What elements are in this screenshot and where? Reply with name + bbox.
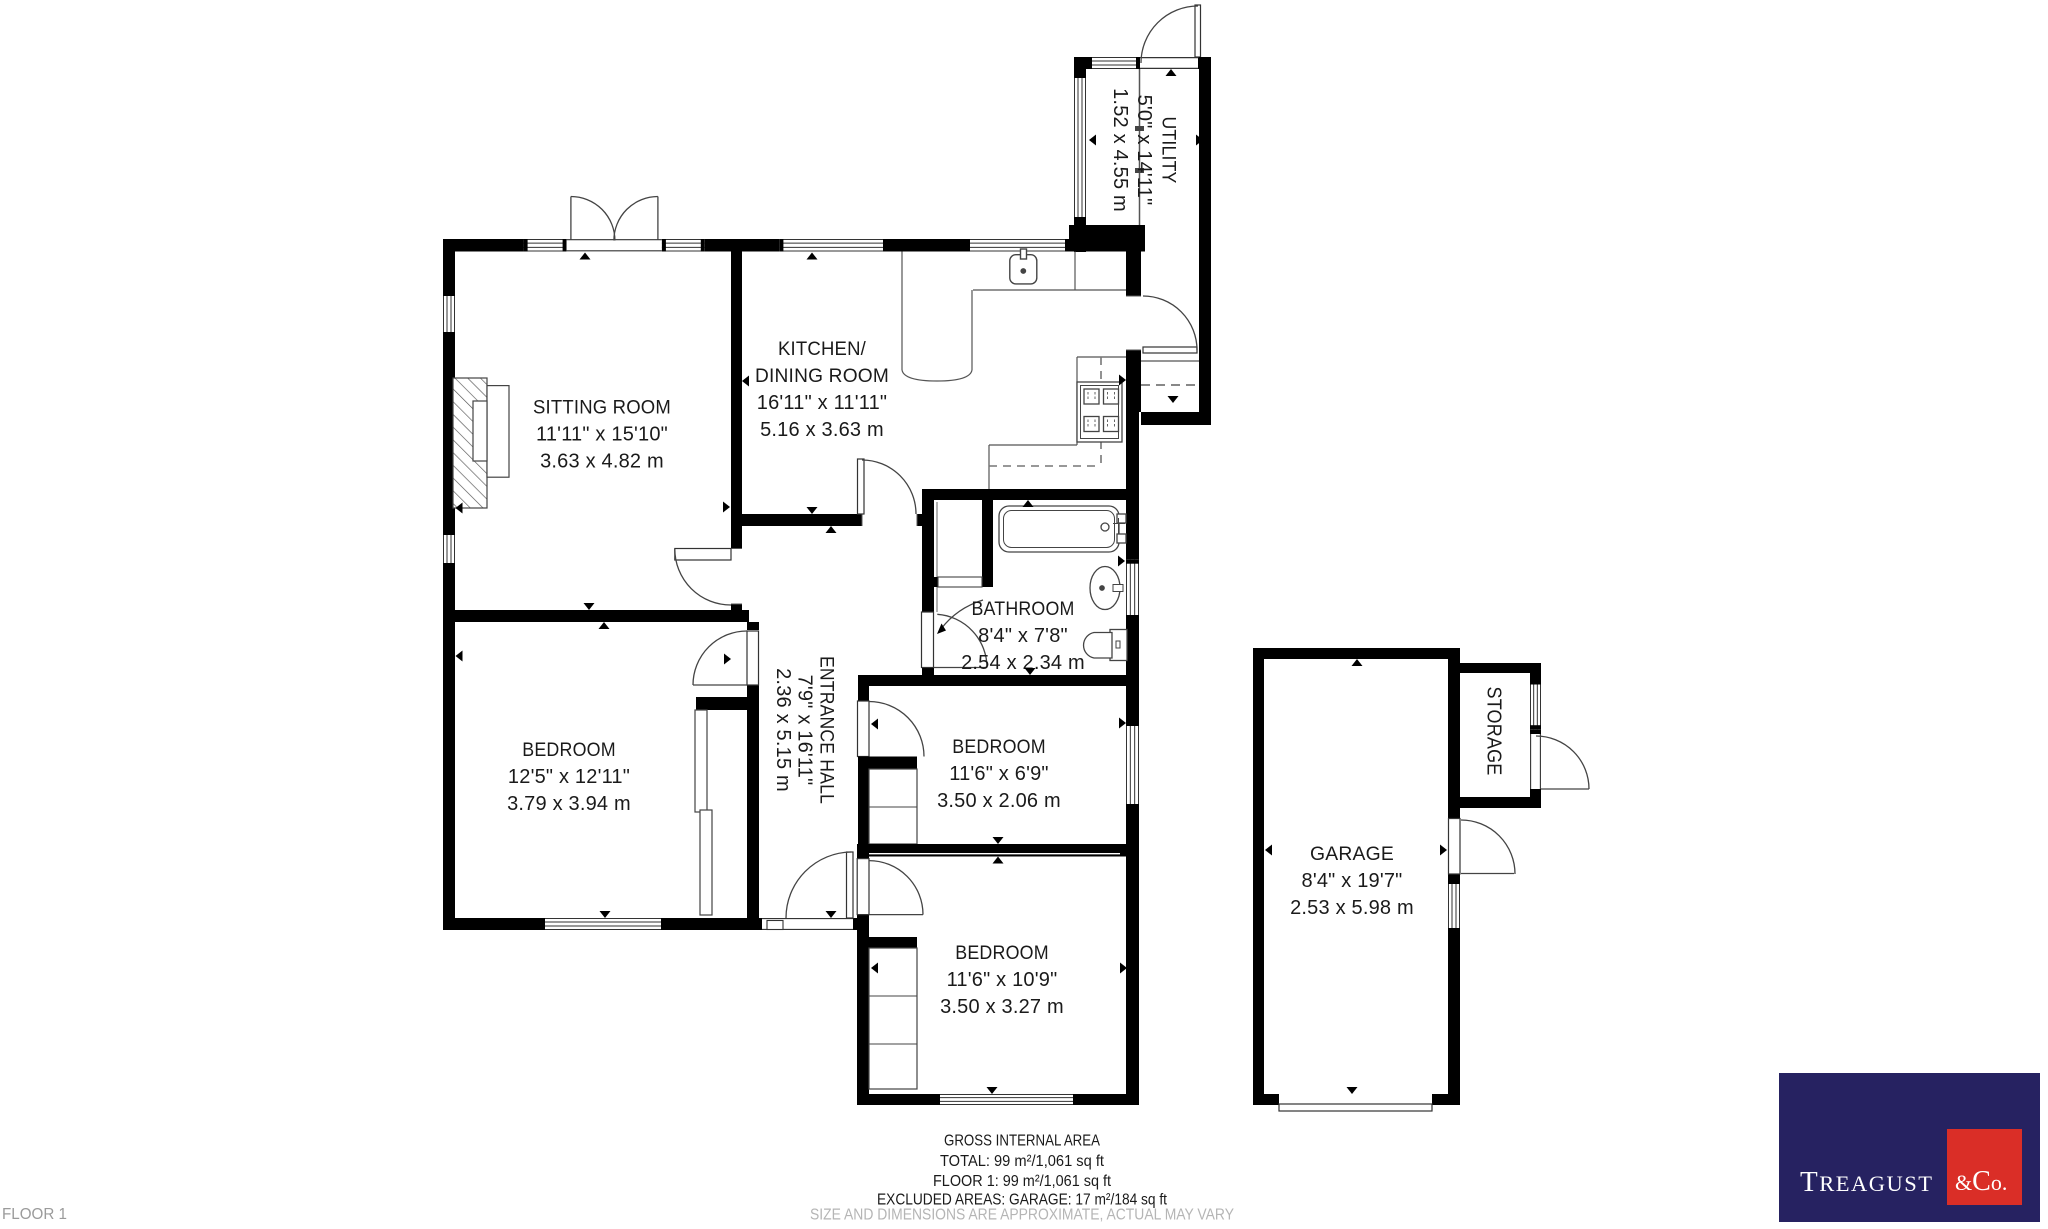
svg-text:12'5" x 12'11": 12'5" x 12'11" [508, 766, 630, 788]
svg-text:8'4" x 19'7": 8'4" x 19'7" [1302, 870, 1403, 892]
svg-text:2.53 x 5.98 m: 2.53 x 5.98 m [1290, 897, 1414, 919]
svg-text:3.50 x 2.06 m: 3.50 x 2.06 m [937, 790, 1061, 812]
svg-text:SITTING ROOM: SITTING ROOM [533, 398, 671, 419]
svg-text:ENTRANCE HALL: ENTRANCE HALL [815, 656, 836, 804]
svg-text:BEDROOM: BEDROOM [955, 943, 1049, 964]
svg-text:&Co.: &Co. [1955, 1166, 2007, 1197]
svg-text:STORAGE: STORAGE [1483, 687, 1505, 776]
svg-text:3.63 x 4.82 m: 3.63 x 4.82 m [540, 451, 664, 473]
svg-text:BEDROOM: BEDROOM [522, 740, 616, 761]
svg-text:UTILITY: UTILITY [1157, 117, 1178, 184]
svg-text:DINING ROOM: DINING ROOM [755, 366, 889, 387]
svg-text:5'0" x 14'11": 5'0" x 14'11" [1133, 95, 1155, 206]
svg-text:16'11" x 11'11": 16'11" x 11'11" [757, 392, 887, 414]
svg-text:11'6" x 6'9": 11'6" x 6'9" [949, 763, 1048, 785]
svg-text:8'4" x 7'8": 8'4" x 7'8" [978, 625, 1068, 647]
svg-text:BEDROOM: BEDROOM [952, 737, 1046, 758]
svg-text:2.36 x 5.15 m: 2.36 x 5.15 m [772, 668, 794, 792]
svg-text:3.79 x 3.94 m: 3.79 x 3.94 m [507, 793, 631, 815]
svg-text:KITCHEN/: KITCHEN/ [778, 339, 866, 360]
svg-text:GARAGE: GARAGE [1310, 844, 1394, 865]
svg-text:TOTAL: 99 m²/1,061 sq ft: TOTAL: 99 m²/1,061 sq ft [940, 1153, 1105, 1170]
svg-text:FLOOR 1: FLOOR 1 [2, 1206, 67, 1223]
svg-text:11'6" x 10'9": 11'6" x 10'9" [947, 969, 1058, 991]
svg-text:7'9" x 16'11": 7'9" x 16'11" [794, 675, 816, 786]
svg-text:11'11" x 15'10": 11'11" x 15'10" [536, 424, 668, 446]
svg-text:2.54 x 2.34 m: 2.54 x 2.34 m [961, 652, 1085, 674]
svg-text:TREAGUST: TREAGUST [1800, 1166, 1933, 1198]
svg-text:FLOOR 1: 99 m²/1,061 sq ft: FLOOR 1: 99 m²/1,061 sq ft [933, 1173, 1111, 1190]
svg-text:3.50 x 3.27 m: 3.50 x 3.27 m [940, 996, 1064, 1018]
svg-text:SIZE AND DIMENSIONS ARE APPROX: SIZE AND DIMENSIONS ARE APPROXIMATE, ACT… [810, 1207, 1234, 1224]
svg-text:1.52 x 4.55 m: 1.52 x 4.55 m [1109, 88, 1131, 212]
svg-text:BATHROOM: BATHROOM [972, 599, 1075, 620]
svg-text:GROSS INTERNAL AREA: GROSS INTERNAL AREA [944, 1133, 1100, 1150]
svg-text:5.16 x 3.63 m: 5.16 x 3.63 m [760, 419, 884, 441]
